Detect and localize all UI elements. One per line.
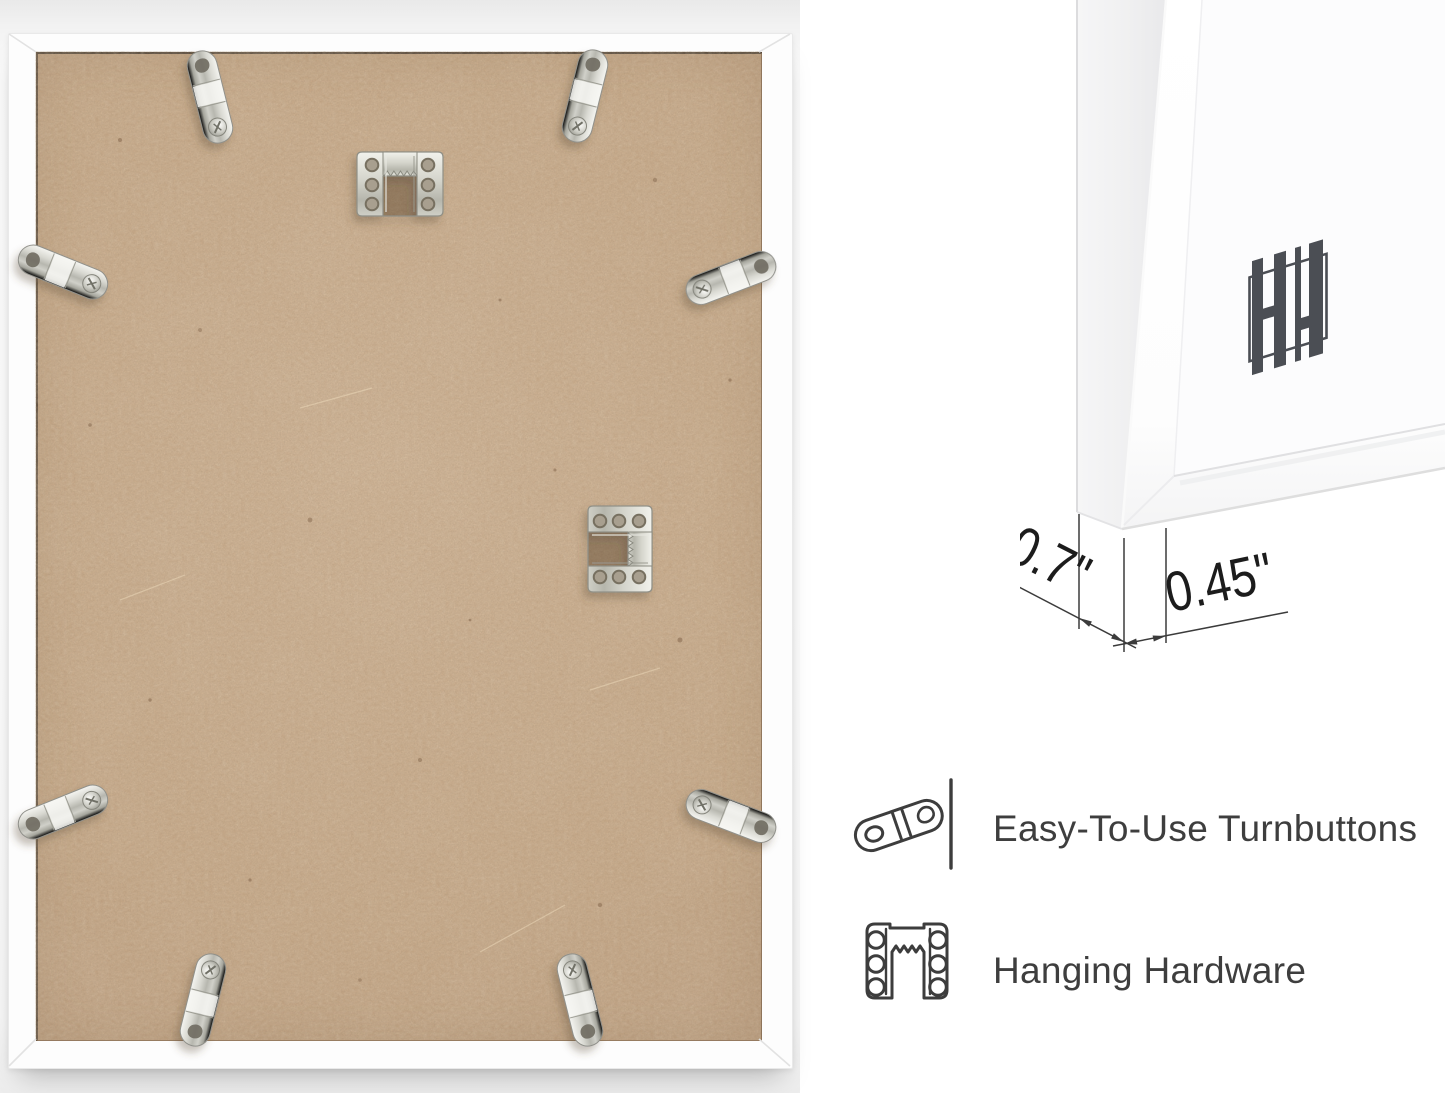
sawtooth-hanger-icon (852, 912, 962, 1012)
feature-label-hanging-hardware: Hanging Hardware (993, 950, 1306, 992)
dimension-label-moulding-width: 0.45" (1159, 540, 1278, 624)
mat-area (1174, 0, 1445, 476)
product-image: 0.7" 0.45" Easy-To-Use Turnbuttons Hangi… (0, 0, 1445, 1093)
frame-back-moulding (8, 33, 793, 1069)
corner-detail: 0.7" 0.45" (1020, 0, 1445, 700)
frame-back-photo (0, 0, 800, 1093)
feature-label-turnbuttons: Easy-To-Use Turnbuttons (993, 808, 1417, 850)
feature-hanging-hardware: Hanging Hardware (852, 912, 1306, 1012)
turnbutton-icon (852, 772, 962, 872)
feature-turnbuttons: Easy-To-Use Turnbuttons (852, 772, 1417, 872)
dimension-label-depth: 0.7" (1020, 513, 1101, 606)
mdf-backing-board (36, 52, 762, 1041)
